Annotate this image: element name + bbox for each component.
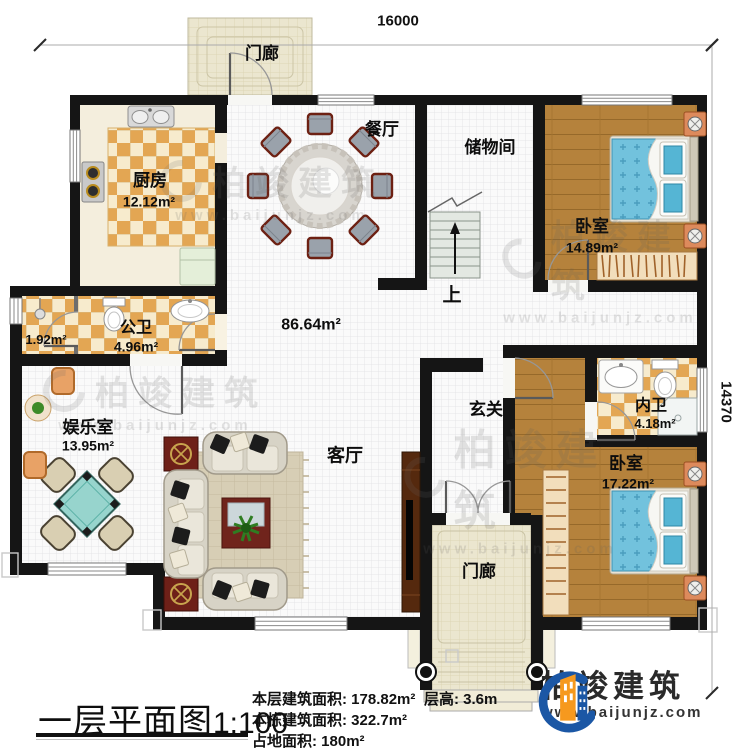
stat-floor-area: 本层建筑面积: 178.82m² — [252, 688, 415, 709]
room-label-bedroom-bottom: 卧室 — [609, 455, 643, 473]
end-table — [164, 437, 198, 471]
stat-building-area-label: 本栋建筑面积: — [252, 712, 347, 729]
title-underline-shadow — [36, 739, 248, 740]
end-table — [164, 577, 198, 611]
stat-land-area-value: 180m² — [321, 733, 364, 750]
kitchen-left-window — [70, 130, 80, 182]
room-area-bedroom-bottom: 17.22m² — [602, 477, 654, 492]
room-label-living: 客厅 — [327, 447, 363, 466]
ensuite-sink — [599, 360, 643, 393]
wardrobe — [543, 470, 569, 615]
room-area-game-room: 13.95m² — [62, 439, 114, 454]
stat-building-area: 本栋建筑面积: 322.7m² — [252, 709, 407, 730]
tv-cabinet — [402, 452, 420, 612]
living-window — [255, 617, 347, 630]
bedroom-bottom-window — [582, 617, 670, 630]
stat-floor-height: 层高: 3.6m — [424, 688, 497, 709]
dimension-height: 14370 — [718, 381, 735, 423]
sofa — [203, 568, 287, 610]
company-logo: 柏竣建筑 www.baijunjz.com — [533, 670, 702, 721]
dimension-width: 16000 — [377, 13, 419, 30]
sofa — [203, 432, 287, 474]
stat-floor-height-label: 层高: — [424, 691, 459, 708]
bedroom-top-window — [582, 95, 672, 105]
room-area-hall: 86.64m² — [281, 318, 341, 335]
room-area-public-bath: 4.96m² — [114, 340, 158, 355]
sofa — [164, 470, 208, 578]
stat-land-area-label: 占地面积: — [252, 733, 317, 750]
room-label-entry: 玄关 — [469, 401, 503, 419]
room-label-porch-top: 门廊 — [245, 45, 279, 63]
room-label-bedroom-top: 卧室 — [575, 218, 609, 236]
nightstand — [684, 462, 706, 486]
bath-left-window — [10, 298, 22, 324]
porch-bottom-floor — [432, 525, 531, 690]
kitchen-fridge — [180, 248, 215, 285]
tv — [406, 500, 413, 580]
stat-floor-area-value: 178.82m² — [351, 691, 415, 708]
ensuite-window — [697, 368, 707, 432]
kitchen-sink — [128, 106, 174, 127]
room-area-kitchen: 12.12m² — [123, 195, 175, 210]
room-area-ensuite: 4.18m² — [634, 417, 675, 431]
ensuite-toilet — [652, 360, 678, 398]
room-label-game-room: 娱乐室 — [63, 419, 114, 437]
room-label-porch-bottom: 门廊 — [462, 563, 496, 581]
nightstand — [684, 576, 706, 600]
room-label-kitchen: 厨房 — [133, 172, 167, 190]
stat-building-area-value: 322.7m² — [351, 712, 407, 729]
floor-plan-drawing — [0, 0, 750, 755]
kitchen-top-window — [318, 95, 374, 105]
company-logo-icon — [533, 670, 595, 744]
room-area-shower: 1.92m² — [25, 333, 66, 347]
room-area-bedroom-top: 14.89m² — [566, 241, 618, 256]
room-label-public-bath: 公卫 — [120, 321, 152, 338]
stat-land-area: 占地面积: 180m² — [252, 730, 365, 751]
stat-floor-height-value: 3.6m — [463, 691, 497, 708]
nightstand — [684, 224, 706, 248]
room-label-ensuite: 内卫 — [635, 399, 667, 416]
kitchen-stove — [82, 162, 104, 202]
stairs-up-label: 上 — [442, 286, 461, 306]
title-underline — [36, 733, 248, 737]
nightstand — [684, 112, 706, 136]
wardrobe — [597, 252, 697, 280]
game-room-window — [48, 563, 126, 575]
floor-plan-page: 柏竣建筑 www.baijunjz.com 柏竣建筑 www.baijunjz.… — [0, 0, 750, 755]
room-label-dining: 餐厅 — [365, 121, 399, 139]
room-label-storage: 储物间 — [465, 139, 516, 157]
stat-floor-area-label: 本层建筑面积: — [252, 691, 347, 708]
coffee-table — [222, 498, 270, 548]
